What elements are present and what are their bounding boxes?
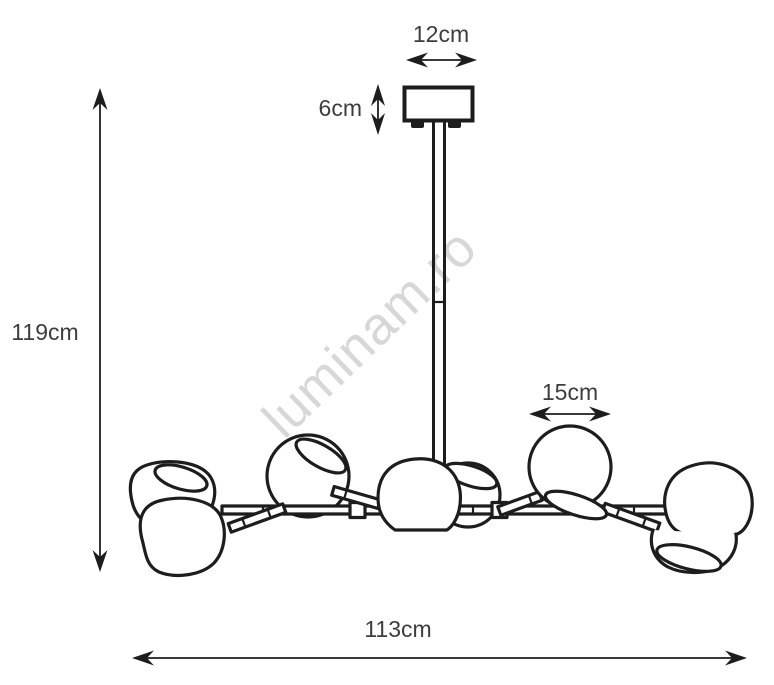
- canopy-box: [405, 88, 473, 121]
- dim-canopy-width: 12cm: [406, 21, 477, 68]
- ceiling-canopy: [405, 88, 473, 129]
- diagram-canvas: luminam.ro 12cm 6cm 119cm 15cm: [0, 0, 774, 685]
- watermark-text: luminam.ro: [251, 218, 488, 449]
- dim-overall-width-label: 113cm: [364, 616, 431, 642]
- shade-group-far-right: [651, 463, 752, 577]
- dim-shade-diameter: 15cm: [529, 379, 611, 422]
- dim-canopy-height: 6cm: [319, 84, 385, 135]
- shade-right-back: [665, 463, 753, 536]
- shade-center-front: [378, 459, 460, 530]
- shade-left-front: [140, 498, 224, 575]
- dim-canopy-width-label: 12cm: [413, 21, 469, 47]
- dim-canopy-height-label: 6cm: [319, 95, 362, 121]
- dim-overall-height-label: 119cm: [11, 319, 78, 345]
- shade-group-far-left: [130, 460, 224, 576]
- dim-overall-width: 113cm: [132, 616, 747, 666]
- dim-overall-height: 119cm: [11, 88, 107, 572]
- dim-shade-diameter-label: 15cm: [542, 379, 598, 405]
- dimension-diagram: luminam.ro 12cm 6cm 119cm 15cm: [0, 0, 774, 685]
